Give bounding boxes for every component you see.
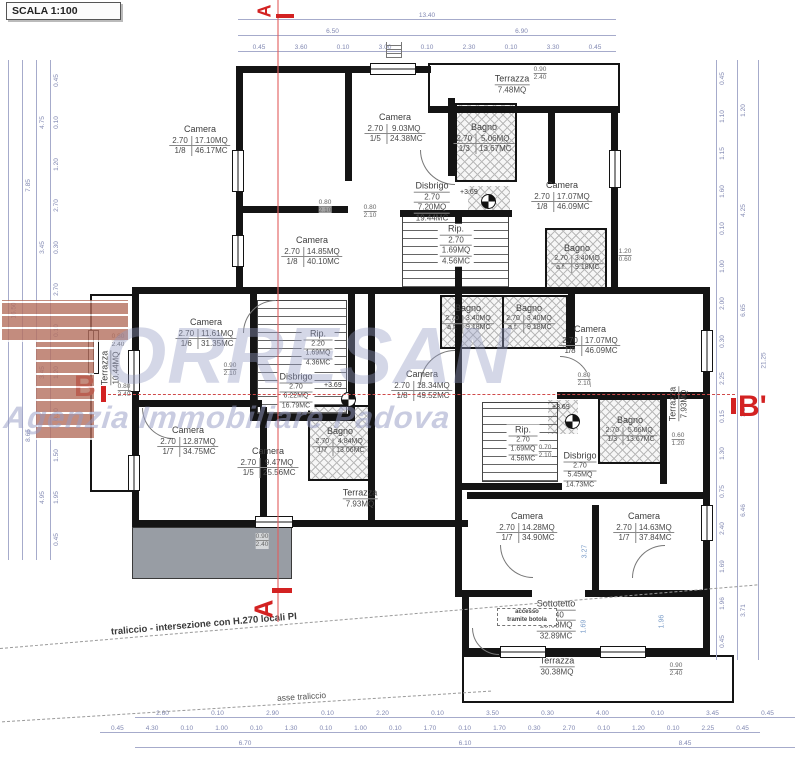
room-name: Bagno [453, 122, 514, 133]
room-ratio: 1/8 [169, 146, 192, 156]
dim-value: 1.20 [631, 725, 646, 732]
room-label: Camera 2.7014.85MQ1/840.10MC [281, 235, 342, 267]
dim-value: 0.45 [110, 725, 125, 732]
dim-value: 1.30 [284, 725, 299, 732]
room-area: 3.40MQ [524, 315, 555, 324]
dim-value: 0.10 [53, 408, 60, 421]
level-marker: +3.69 [324, 382, 342, 389]
room-label: Camera 2.7014.28MQ1/734.90MC [496, 511, 557, 543]
room-ratio: 1/8 [531, 202, 554, 212]
dim-value: 4.75 [39, 116, 46, 129]
dim-value: 0.45 [588, 44, 603, 51]
wall [462, 590, 532, 597]
dim-chain-right-total: 21.25 [758, 60, 770, 660]
interior-dim: 1.69 [580, 620, 587, 634]
dim-value: 1.70 [492, 725, 507, 732]
room-name: Rip. [440, 224, 472, 236]
room-label: Rip. 2.701.69MQ4.56MC [438, 224, 474, 267]
dim-value: 0.45 [719, 635, 726, 648]
asse-traliccio-label: asse traliccio [277, 690, 327, 703]
section-marker-b-left: B [74, 372, 96, 402]
dim-value: 0.30 [527, 725, 542, 732]
room-height: 2.70 [613, 523, 636, 534]
dim-value: 0.10 [457, 725, 472, 732]
door-swing [632, 545, 665, 578]
room-name: Bagno [503, 303, 555, 314]
room-label: Disbrigo 2.705.45MQ14.73MC [563, 451, 596, 490]
dim-chain-left-mid: 7.858.65 [22, 60, 34, 560]
wall [467, 492, 703, 499]
room-area: 14.28MQ [519, 523, 558, 534]
dim-chain-top-sub: 6.506.90 [238, 24, 616, 36]
dim-value: 0.45 [760, 710, 775, 717]
room-ratio: 1/3 [602, 436, 623, 444]
section-marker-a-top: A [256, 5, 274, 18]
room-height: 2.70 [496, 523, 519, 534]
room-height: 2.70 [440, 236, 472, 247]
room-label: Bagno 2.705.06MQ1/313.67MC [453, 122, 514, 154]
window [128, 455, 140, 491]
room-volume: 13.67MC [476, 144, 514, 154]
room-name: Disbrigo [563, 451, 596, 463]
room-area: 30.38MQ [541, 667, 574, 676]
wall [345, 73, 352, 181]
dim-value: 2.70 [562, 725, 577, 732]
section-line-a [277, 0, 279, 622]
room-label: Bagno 2.703.40MQa.f.9.18MC [503, 303, 555, 333]
dim-value: 2.20 [375, 710, 390, 717]
room-area: 17.07MQ [554, 192, 593, 203]
dim-value: 6.65 [740, 304, 747, 317]
room-area: 1.69MQ [440, 246, 472, 257]
dim-value: 0.10 [596, 725, 611, 732]
room-volume: 46.09MC [554, 202, 593, 212]
dim-value: 7.85 [25, 179, 32, 192]
dim-value: 0.10 [53, 116, 60, 129]
lamp-symbol-icon [386, 42, 402, 58]
section-tick [276, 14, 294, 18]
room-name: Rip. [304, 329, 333, 341]
door-size-label: 0.702.10 [539, 444, 552, 460]
dim-value: 6.46 [740, 504, 747, 517]
dim-value: 0.10 [504, 44, 519, 51]
dim-chain-left-sub: 4.753.453.454.95 [36, 60, 48, 560]
room-height: 2.70 [169, 136, 192, 147]
room-volume: 9.18MC [572, 264, 603, 272]
dim-value: 2.25 [719, 372, 726, 385]
dim-value: 0.45 [53, 75, 60, 88]
room-area: 1.69MQ [509, 446, 538, 455]
dim-value: 1.30 [719, 447, 726, 460]
room-label: Disbrigo 2.707.20MQ19.44MC [414, 181, 450, 224]
room-label: Disbrigo 2.706.22MQ16.79MC [277, 372, 314, 411]
room-name: Bagno [602, 415, 657, 426]
room-label: Terrazza 7.93MQ [343, 487, 378, 508]
room-height: 2.70 [551, 255, 572, 264]
wall [132, 520, 468, 527]
window [609, 150, 621, 188]
room-volume: 13.06MC [333, 447, 367, 455]
room-volume: 24.38MC [387, 134, 425, 144]
door-size-label: 0.802.10 [319, 199, 332, 215]
dim-value: 1.00 [214, 725, 229, 732]
level-marker: +3.69 [460, 189, 478, 196]
dim-value: 0.10 [180, 725, 195, 732]
section-tick [101, 386, 106, 402]
wall [428, 106, 618, 113]
window [370, 63, 416, 75]
room-name: Bagno [312, 426, 367, 437]
room-name: Camera [531, 180, 592, 191]
room-label: Bagno 2.703.40MQa.f.9.18MC [442, 303, 494, 333]
room-label: Rip. 2.201.69MQ4.36MC [302, 329, 335, 368]
door-swing [500, 545, 533, 578]
dim-value: 0.10 [320, 710, 335, 717]
room-area: 1.69MQ [304, 350, 333, 359]
terrace-parapet [462, 655, 734, 703]
dim-value: 8.65 [25, 429, 32, 442]
room-volume: 49.52MC [414, 391, 453, 401]
dim-value: 1.60 [719, 185, 726, 198]
dim-value: 8.45 [678, 740, 693, 747]
wall [611, 106, 618, 294]
dim-value: 1.15 [719, 147, 726, 160]
floor-plan-canvas: SCALA 1:100 13.40 6.506.90 0.453.600.103… [0, 0, 800, 763]
dim-value: 1.00 [353, 725, 368, 732]
dim-chain-right-detail: 0.451.101.151.600.101.002.000.302.250.15… [716, 60, 728, 660]
room-area: 7.20MQ [414, 203, 450, 214]
dim-value: 2.70 [53, 283, 60, 296]
wall [243, 206, 348, 213]
room-label: Bagno 2.704.84MQ1/713.06MC [312, 426, 367, 456]
room-area: 17.10MQ [192, 136, 231, 147]
dim-value: 4.25 [740, 204, 747, 217]
dim-value: 0.10 [53, 324, 60, 337]
room-area: 5.06MQ [476, 134, 514, 145]
section-marker-b-right: B' [738, 392, 767, 422]
room-name: Camera [391, 369, 452, 380]
room-height: 2.70 [391, 381, 414, 392]
dim-value: 1.69 [719, 560, 726, 573]
room-area: 5.45MQ [563, 472, 596, 481]
dim-value: 1.50 [53, 449, 60, 462]
room-name: Rip. [509, 425, 538, 437]
wall [132, 287, 710, 294]
room-ratio: 1/7 [157, 447, 180, 457]
room-volume: 34.90MC [519, 533, 558, 543]
room-area: 9.47MQ [260, 458, 298, 469]
wall [592, 505, 599, 590]
room-name: Bagno [442, 303, 494, 314]
room-height: 2.70 [559, 336, 582, 347]
dim-value: 0.45 [735, 725, 750, 732]
room-label: Bagno 2.703.40MQa.f.9.18MC [551, 243, 603, 273]
interior-dim: 1.96 [658, 615, 665, 629]
room-area: 14.63MQ [636, 523, 675, 534]
dim-value: 1.00 [719, 260, 726, 273]
wall [462, 483, 562, 490]
wall [548, 112, 555, 184]
room-volume: 25.56MC [260, 468, 298, 478]
dim-value: 2.90 [265, 710, 280, 717]
level-marker: +3.69 [552, 404, 570, 411]
room-ratio: 1/8 [391, 391, 414, 401]
room-volume: 46.09MC [582, 346, 621, 356]
room-volume: 9.18MC [524, 324, 555, 332]
door-size-label: 0.902.40 [256, 533, 269, 549]
room-name: Terrazza [667, 387, 679, 422]
dim-value: 0.75 [719, 485, 726, 498]
door-size-label: 0.802.40 [118, 383, 131, 399]
room-height: 2.70 [312, 438, 333, 447]
wall [132, 287, 139, 527]
room-height: 2.70 [175, 329, 198, 340]
dim-value: 1.20 [53, 366, 60, 379]
dim-value: 1.20 [53, 158, 60, 171]
section-tick [731, 398, 736, 414]
room-height: 2.70 [442, 315, 463, 324]
room-volume: 37.84MC [636, 533, 675, 543]
room-name: Terrazza [495, 73, 530, 85]
dim-value: 3.50 [485, 710, 500, 717]
scale-label: SCALA 1:100 [12, 5, 78, 17]
door-size-label: 0.802.10 [364, 204, 377, 220]
room-volume: 31.35MC [198, 339, 236, 349]
dim-value: 3.45 [39, 366, 46, 379]
dim-value: 0.45 [719, 72, 726, 85]
dim-chain-bottom-3: 6.706.108.45 [135, 736, 795, 748]
room-label: Camera 2.709.47MQ1/525.56MC [237, 446, 298, 478]
dim-chain-top-detail: 0.453.600.103.000.102.300.103.300.45 [238, 40, 616, 52]
dim-value: 4.30 [145, 725, 160, 732]
room-area: 7.48MQ [498, 85, 526, 94]
dim-value: 6.50 [325, 28, 340, 35]
door-swing [243, 300, 276, 333]
attic-access-line1: accesso [498, 609, 556, 617]
dim-value: 0.10 [420, 44, 435, 51]
room-volume: 46.17MC [192, 146, 231, 156]
dim-value: 1.95 [53, 491, 60, 504]
room-label: Terrazza 10.44MQ [99, 351, 120, 386]
room-area: 11.61MQ [198, 329, 236, 340]
room-height: 2.70 [157, 437, 180, 448]
window [701, 330, 713, 372]
room-area: 3.40MQ [572, 255, 603, 264]
room-label: Bagno 2.705.06MQ1/313.67MC [602, 415, 657, 445]
door-size-label: 0.902.40 [670, 662, 683, 678]
attic-access-line2: tramite botola [498, 617, 556, 625]
dim-value: 0.10 [249, 725, 264, 732]
room-area: 9.03MQ [387, 124, 425, 135]
room-ratio: a.f. [503, 324, 524, 332]
dim-value: 6.70 [238, 740, 253, 747]
room-ratio: a.f. [551, 264, 572, 272]
level-marker-symbol [565, 414, 580, 429]
room-name: Camera [237, 446, 298, 457]
dim-value: 3.30 [546, 44, 561, 51]
room-ratio: 1/6 [175, 339, 198, 349]
room-name: Camera [281, 235, 342, 246]
room-ratio: 1/7 [496, 533, 519, 543]
dim-value: 2.25 [701, 725, 716, 732]
wall [462, 590, 469, 655]
room-ratio: 1/5 [364, 134, 387, 144]
door-size-label: 0.802.10 [578, 372, 591, 388]
room-label: Camera 2.7017.07MQ1/846.09MC [559, 324, 620, 356]
dim-chain-left-detail: 0.450.101.202.700.302.700.101.200.101.50… [50, 60, 62, 560]
room-label: Terrazza 7.93MQ [667, 387, 688, 422]
dim-value: 2.40 [719, 522, 726, 535]
room-ratio: 1/8 [559, 346, 582, 356]
room-height: 2.70 [531, 192, 554, 203]
room-name: Disbrigo [414, 181, 450, 193]
room-volume: 32.89MC [537, 632, 576, 642]
room-name: Camera [157, 425, 218, 436]
dim-value: 21.25 [761, 352, 768, 368]
room-area: 14.85MQ [304, 247, 343, 258]
room-volume: 14.73MC [563, 481, 596, 489]
room-label: Camera 2.7017.07MQ1/846.09MC [531, 180, 592, 212]
wall [368, 294, 375, 520]
room-ratio: 1/7 [312, 447, 333, 455]
room-height: 2.70 [364, 124, 387, 135]
room-area: 3.40MQ [463, 315, 494, 324]
room-volume: 13.67MC [623, 436, 657, 444]
room-ratio: 1/5 [237, 468, 260, 478]
room-name: Terrazza [540, 655, 575, 667]
dim-value: 0.45 [252, 44, 267, 51]
dim-value: 0.10 [650, 710, 665, 717]
door-size-label: 0.902.40 [534, 66, 547, 82]
room-label: Terrazza 7.48MQ [495, 73, 530, 94]
room-name: Camera [559, 324, 620, 335]
dim-value: 0.15 [719, 410, 726, 423]
dim-value: 0.30 [540, 710, 555, 717]
attic-access-note: accesso tramite botola [497, 608, 557, 626]
room-volume: 4.36MC [304, 359, 333, 367]
interior-dim: 3.27 [581, 545, 588, 559]
room-volume: 16.79MC [279, 402, 312, 410]
dim-value: 1.20 [740, 104, 747, 117]
dim-value: 3.45 [39, 241, 46, 254]
dim-value: 1.70 [423, 725, 438, 732]
door-size-label: 0.902.10 [224, 362, 237, 378]
room-volume: 4.56MC [440, 257, 472, 267]
room-name: Camera [364, 112, 425, 123]
section-tick [272, 588, 292, 593]
dim-value: 4.95 [39, 491, 46, 504]
room-height: 2.70 [237, 458, 260, 469]
room-height: 2.20 [304, 340, 333, 349]
level-marker-symbol [481, 194, 496, 209]
dim-value: 16.50 [11, 302, 18, 318]
room-height: 2.70 [509, 436, 538, 445]
room-volume: 4.56MC [509, 455, 538, 463]
dim-value: 6.10 [458, 740, 473, 747]
room-volume: 19.44MC [414, 214, 450, 224]
door-size-label: 1.200.60 [619, 248, 632, 264]
dim-value: 0.30 [719, 335, 726, 348]
room-height: 2.70 [563, 462, 596, 471]
window [232, 235, 244, 267]
dim-value: 0.45 [53, 533, 60, 546]
dim-value: 1.96 [719, 597, 726, 610]
room-label: Camera 2.7011.61MQ1/631.35MC [175, 317, 236, 349]
room-volume: 9.18MC [463, 324, 494, 332]
room-area: 10.44MQ [111, 352, 120, 385]
dim-value: 0.10 [318, 725, 333, 732]
room-name: Disbrigo [279, 372, 312, 384]
dim-chain-top-total: 13.40 [238, 8, 616, 20]
room-label: Terrazza 30.38MQ [540, 655, 575, 676]
room-area: 7.93MQ [346, 499, 374, 508]
wall [660, 392, 667, 484]
dim-value: 4.00 [595, 710, 610, 717]
dim-value: 1.10 [719, 110, 726, 123]
room-height: 2.70 [602, 427, 623, 436]
dim-value: 3.60 [294, 44, 309, 51]
room-ratio: a.f. [442, 324, 463, 332]
scale-box: SCALA 1:100 [6, 2, 121, 20]
wall [137, 400, 262, 407]
window [88, 330, 99, 374]
window [600, 646, 646, 658]
dim-value: 2.00 [719, 297, 726, 310]
room-height: 2.70 [279, 383, 312, 392]
room-volume: 40.10MC [304, 257, 343, 267]
room-height: 2.70 [453, 134, 476, 145]
room-label: Camera 2.7017.10MQ1/846.17MC [169, 124, 230, 156]
room-label: Rip. 2.701.69MQ4.56MC [507, 425, 540, 464]
room-area: 4.84MQ [333, 438, 367, 447]
room-label: Camera 2.7018.34MQ1/849.52MC [391, 369, 452, 401]
room-label: Camera 2.7014.63MQ1/737.84MC [613, 511, 674, 543]
door-size-label: 0.802.40 [112, 333, 125, 349]
traliccio-line: traliccio - intersezione con H.270 local… [0, 584, 757, 649]
room-area: 5.06MQ [623, 427, 657, 436]
room-area: 17.07MQ [582, 336, 621, 347]
dim-chain-bottom-2: 0.454.300.101.000.101.300.101.000.101.70… [100, 721, 760, 733]
dim-value: 0.10 [430, 710, 445, 717]
room-height: 2.70 [503, 315, 524, 324]
dim-value: 0.30 [53, 241, 60, 254]
dim-value: 3.45 [705, 710, 720, 717]
room-name: Camera [613, 511, 674, 522]
dim-value: 13.40 [418, 12, 436, 19]
dim-value: 0.10 [666, 725, 681, 732]
dim-value: 6.90 [514, 28, 529, 35]
room-name: Camera [169, 124, 230, 135]
wall [455, 213, 462, 597]
room-name: Bagno [551, 243, 603, 254]
dim-value: 0.10 [388, 725, 403, 732]
room-name: Camera [175, 317, 236, 328]
room-name: Terrazza [99, 351, 111, 386]
room-ratio: 1/8 [281, 257, 304, 267]
room-ratio: 1/3 [453, 144, 476, 154]
room-height: 2.70 [281, 247, 304, 258]
room-name: Camera [496, 511, 557, 522]
window [701, 505, 713, 541]
dim-value: 2.70 [53, 199, 60, 212]
dim-value: 2.30 [462, 44, 477, 51]
dim-value: 0.10 [210, 710, 225, 717]
room-label: Camera 2.7012.87MQ1/734.75MC [157, 425, 218, 457]
dim-chain-left-total: 16.50 [8, 60, 20, 560]
window [232, 150, 244, 192]
door-size-label: 0.601.20 [672, 432, 685, 448]
section-line-b [103, 394, 735, 395]
